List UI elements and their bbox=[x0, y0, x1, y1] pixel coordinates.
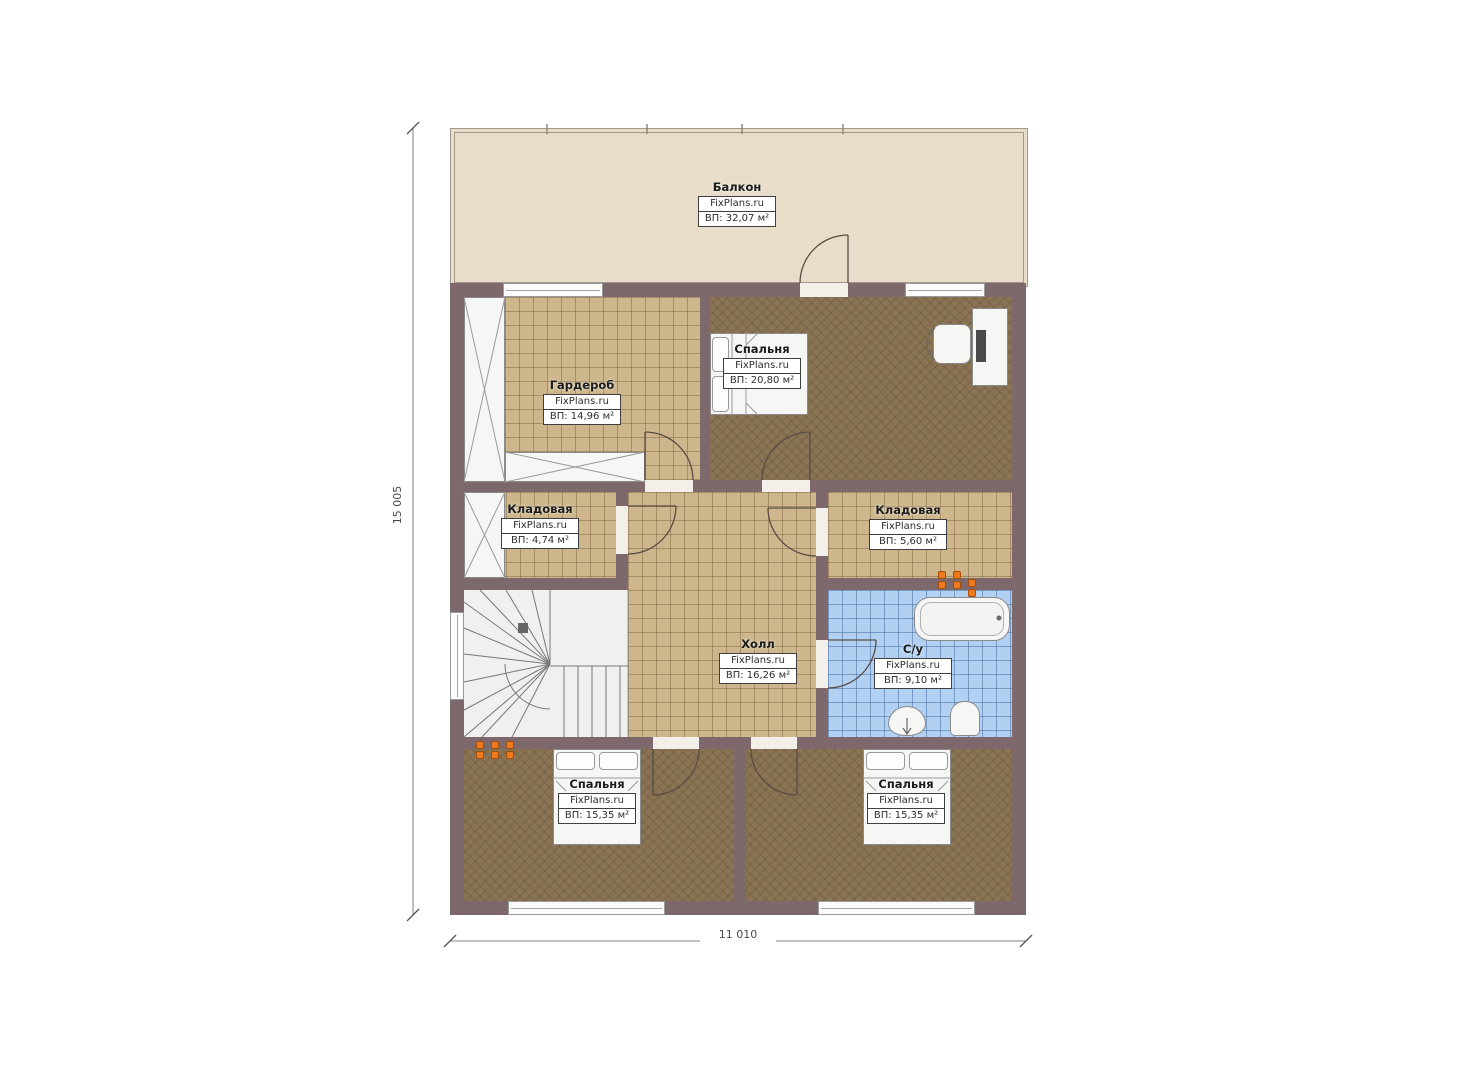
watermark: FixPlans.ru bbox=[559, 794, 635, 809]
room-label-bedroom-left: Спальня FixPlans.ru ВП: 15,35 м² bbox=[537, 777, 657, 824]
pillow bbox=[599, 752, 638, 770]
door-opening-bedroom-top bbox=[762, 480, 810, 492]
watermark: FixPlans.ru bbox=[875, 659, 951, 674]
door-opening-storage-left bbox=[616, 506, 628, 554]
window-top-right bbox=[905, 283, 985, 297]
outlet-marker bbox=[506, 751, 514, 759]
room-info-box: FixPlans.ru ВП: 5,60 м² bbox=[869, 519, 947, 550]
toilet bbox=[950, 701, 980, 736]
window-top-left bbox=[503, 283, 603, 297]
outlet-marker bbox=[491, 751, 499, 759]
room-name: Кладовая bbox=[848, 503, 968, 517]
room-area: ВП: 5,60 м² bbox=[870, 535, 946, 549]
door-opening-wardrobe bbox=[645, 480, 693, 492]
outlet-marker bbox=[476, 751, 484, 759]
room-name: Гардероб bbox=[522, 378, 642, 392]
outlet-marker bbox=[476, 741, 484, 749]
room-label-bedroom-right: Спальня FixPlans.ru ВП: 15,35 м² bbox=[846, 777, 966, 824]
watermark: FixPlans.ru bbox=[720, 654, 796, 669]
room-area: ВП: 20,80 м² bbox=[724, 374, 800, 388]
watermark: FixPlans.ru bbox=[724, 359, 800, 374]
watermark: FixPlans.ru bbox=[868, 794, 944, 809]
room-label-balcony: Балкон FixPlans.ru ВП: 32,07 м² bbox=[677, 180, 797, 227]
computer-monitor bbox=[976, 330, 986, 362]
door-opening-bedroom-right bbox=[751, 737, 797, 749]
window-bottom-left bbox=[508, 901, 665, 915]
room-name: С/у bbox=[853, 642, 973, 656]
room-info-box: FixPlans.ru ВП: 16,26 м² bbox=[719, 653, 797, 684]
room-info-box: FixPlans.ru ВП: 20,80 м² bbox=[723, 358, 801, 389]
room-name: Холл bbox=[698, 637, 818, 651]
dimension-height: 15 005 bbox=[391, 475, 405, 535]
room-info-box: FixPlans.ru ВП: 14,96 м² bbox=[543, 394, 621, 425]
room-info-box: FixPlans.ru ВП: 9,10 м² bbox=[874, 658, 952, 689]
pillow bbox=[909, 752, 948, 770]
staircase-area bbox=[464, 590, 628, 737]
outlet-marker bbox=[968, 589, 976, 597]
room-area: ВП: 9,10 м² bbox=[875, 674, 951, 688]
door-opening-storage-right bbox=[816, 508, 828, 556]
bathtub-inner bbox=[920, 602, 1004, 636]
outlet-marker bbox=[938, 581, 946, 589]
outlet-marker bbox=[938, 571, 946, 579]
wardrobe-closet-left bbox=[464, 297, 505, 482]
room-name: Спальня bbox=[702, 342, 822, 356]
outlet-marker bbox=[506, 741, 514, 749]
desk-chair bbox=[933, 324, 971, 364]
outlet-marker bbox=[491, 741, 499, 749]
window-bottom-right bbox=[818, 901, 975, 915]
room-label-bedroom-top: Спальня FixPlans.ru ВП: 20,80 м² bbox=[702, 342, 822, 389]
floor-plan-canvas: Балкон FixPlans.ru ВП: 32,07 м² Гардероб… bbox=[0, 0, 1474, 1080]
pillow bbox=[866, 752, 905, 770]
sink bbox=[888, 706, 926, 736]
room-area: ВП: 14,96 м² bbox=[544, 410, 620, 424]
room-name: Спальня bbox=[537, 777, 657, 791]
room-name: Спальня bbox=[846, 777, 966, 791]
watermark: FixPlans.ru bbox=[870, 520, 946, 535]
hall-floor bbox=[628, 492, 816, 737]
room-area: ВП: 15,35 м² bbox=[559, 809, 635, 823]
outlet-marker bbox=[968, 579, 976, 587]
room-area: ВП: 32,07 м² bbox=[699, 212, 775, 226]
room-area: ВП: 16,26 м² bbox=[720, 669, 796, 683]
watermark: FixPlans.ru bbox=[502, 519, 578, 534]
room-label-hall: Холл FixPlans.ru ВП: 16,26 м² bbox=[698, 637, 818, 684]
room-label-storage-right: Кладовая FixPlans.ru ВП: 5,60 м² bbox=[848, 503, 968, 550]
room-label-bathroom: С/у FixPlans.ru ВП: 9,10 м² bbox=[853, 642, 973, 689]
door-opening-balcony bbox=[800, 283, 848, 297]
room-name: Балкон bbox=[677, 180, 797, 194]
window-stairs-left bbox=[450, 612, 464, 700]
room-info-box: FixPlans.ru ВП: 32,07 м² bbox=[698, 196, 776, 227]
room-area: ВП: 15,35 м² bbox=[868, 809, 944, 823]
watermark: FixPlans.ru bbox=[699, 197, 775, 212]
outlet-marker bbox=[953, 571, 961, 579]
outlet-marker bbox=[953, 581, 961, 589]
room-info-box: FixPlans.ru ВП: 15,35 м² bbox=[867, 793, 945, 824]
room-label-wardrobe: Гардероб FixPlans.ru ВП: 14,96 м² bbox=[522, 378, 642, 425]
room-info-box: FixPlans.ru ВП: 4,74 м² bbox=[501, 518, 579, 549]
room-area: ВП: 4,74 м² bbox=[502, 534, 578, 548]
room-label-storage-left: Кладовая FixPlans.ru ВП: 4,74 м² bbox=[480, 502, 600, 549]
pillow bbox=[556, 752, 595, 770]
dimension-width: 11 010 bbox=[700, 928, 776, 942]
room-info-box: FixPlans.ru ВП: 15,35 м² bbox=[558, 793, 636, 824]
room-name: Кладовая bbox=[480, 502, 600, 516]
wardrobe-closet-bottom bbox=[505, 452, 645, 482]
watermark: FixPlans.ru bbox=[544, 395, 620, 410]
door-opening-bedroom-left bbox=[653, 737, 699, 749]
